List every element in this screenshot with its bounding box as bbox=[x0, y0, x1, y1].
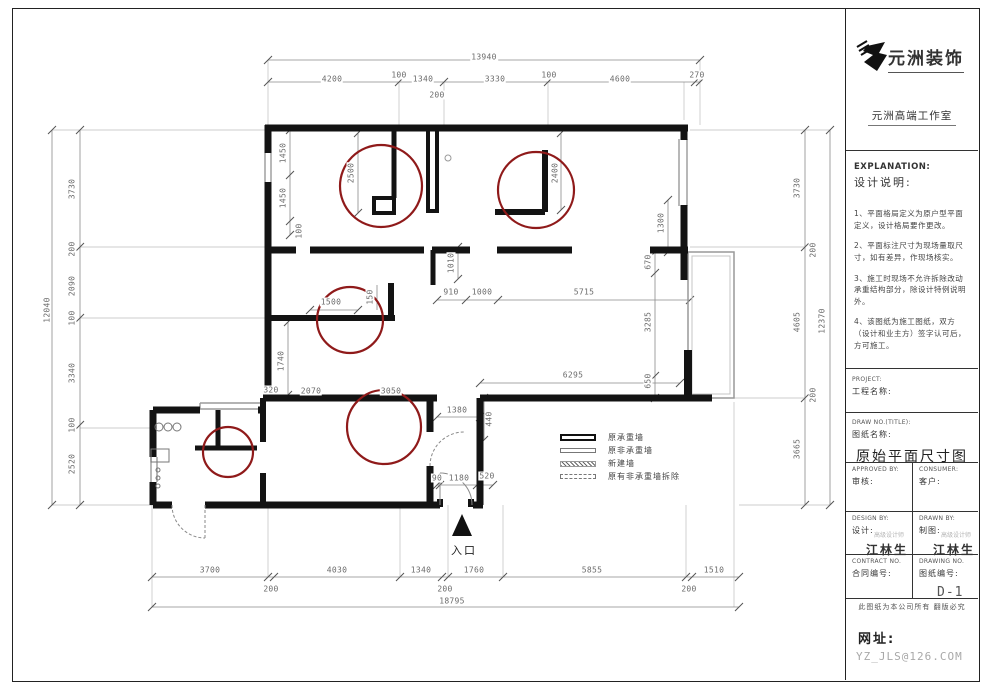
design-note: 4、该图纸为施工图纸，双方（设计和业主方）签字认可后，方可施工。 bbox=[854, 316, 970, 351]
contract-label-en: CONTRACT NO. bbox=[852, 558, 912, 565]
drawing-sheet: 1394042001001340333010046002702001204037… bbox=[0, 0, 990, 690]
dimension-label: 200 bbox=[428, 91, 445, 100]
dimension-label: 320 bbox=[262, 386, 279, 395]
website-label: 网址: bbox=[858, 628, 895, 647]
dimension-label: 150 bbox=[366, 288, 375, 305]
legend-row: 原承重墙 bbox=[560, 431, 680, 444]
divider bbox=[846, 368, 978, 369]
dimension-ticks bbox=[48, 56, 834, 611]
dimension-label: 3700 bbox=[199, 566, 221, 575]
dimension-label: 3285 bbox=[644, 311, 653, 333]
legend-label: 原非承重墙 bbox=[608, 445, 653, 456]
dimension-label: 270 bbox=[688, 71, 705, 80]
dimension-label: 910 bbox=[442, 288, 459, 297]
draftsman-stamp: 高级设计师 bbox=[941, 530, 978, 539]
approved-label-cn: 审核: bbox=[852, 476, 912, 487]
company-name: 元洲装饰 bbox=[888, 44, 964, 73]
dimension-label: 3330 bbox=[484, 75, 506, 84]
legend-label: 新建墙 bbox=[608, 458, 635, 469]
dimension-label: 3730 bbox=[68, 178, 77, 200]
consumer-cell: CONSUMER: 客户: bbox=[912, 462, 978, 511]
legend-swatch-demolish-wall bbox=[560, 474, 596, 479]
dimension-label: 12040 bbox=[43, 296, 52, 324]
dimension-label: 5855 bbox=[581, 566, 603, 575]
project-label-en: PROJECT: bbox=[852, 376, 972, 383]
approved-row: APPROVED BY: 审核: CONSUMER: 客户: bbox=[846, 462, 978, 511]
dimension-label: 1000 bbox=[471, 288, 493, 297]
dimension-label: 2070 bbox=[300, 387, 322, 396]
dimension-label: 200 bbox=[809, 241, 818, 258]
dimension-label: 200 bbox=[680, 585, 697, 594]
company-header: 元洲装饰 bbox=[854, 38, 964, 78]
dimension-label: 4200 bbox=[321, 75, 343, 84]
legend-row: 原非承重墙 bbox=[560, 444, 680, 457]
legend-label: 原承重墙 bbox=[608, 432, 644, 443]
consumer-label-cn: 客户: bbox=[919, 476, 978, 487]
dimension-label: 90 bbox=[431, 474, 443, 483]
dimension-label: 1450 bbox=[279, 142, 288, 164]
drawing-title-label-cn: 图纸名称: bbox=[852, 429, 972, 440]
project-section: PROJECT: 工程名称: bbox=[846, 372, 978, 401]
dimension-label: 1340 bbox=[412, 75, 434, 84]
studio-name: 元洲高端工作室 bbox=[846, 108, 978, 123]
drawn-label-en: DRAWN BY: bbox=[919, 515, 978, 522]
dimension-label: 13940 bbox=[470, 53, 498, 62]
dimension-label: 1760 bbox=[463, 566, 485, 575]
dimension-lines bbox=[52, 60, 830, 607]
legend-row: 原有非承重墙拆除 bbox=[560, 470, 680, 483]
dimension-label: 650 bbox=[644, 372, 653, 389]
floor-plan bbox=[0, 0, 990, 690]
design-note: 2、平面标注尺寸为现场量取尺寸，如有差异，作现场核实。 bbox=[854, 240, 970, 263]
dimension-label: 5715 bbox=[573, 288, 595, 297]
dimension-label: 100 bbox=[390, 71, 407, 80]
dimension-label: 2520 bbox=[68, 453, 77, 475]
dimension-label: 1740 bbox=[277, 350, 286, 372]
dimension-label: 440 bbox=[485, 410, 494, 427]
design-note: 1、平面格局定义为原户型平面定义，设计格局要作更改。 bbox=[854, 208, 970, 231]
dimension-label: 2500 bbox=[347, 162, 356, 184]
wall-legend: 原承重墙 原非承重墙 新建墙 原有非承重墙拆除 bbox=[560, 431, 680, 483]
dimension-label: 1340 bbox=[410, 566, 432, 575]
drawing-no-cell: DRAWING NO. 图纸编号: D-1 bbox=[912, 554, 978, 598]
dimension-label: 2400 bbox=[551, 162, 560, 184]
drawn-cell: DRAWN BY: 制图: 高级设计师 江林生 bbox=[912, 511, 978, 554]
dimension-label: 6295 bbox=[562, 371, 584, 380]
marker-circle bbox=[498, 152, 574, 228]
approved-cell: APPROVED BY: 审核: bbox=[846, 462, 912, 511]
explanation-heading-en: EXPLANATION: bbox=[854, 162, 970, 172]
design-note: 3、施工时现场不允许拆除改动承重结构部分，除设计特例说明外。 bbox=[854, 273, 970, 308]
drawing-no-label-cn: 图纸编号: bbox=[919, 568, 978, 579]
entrance-label: 入口 bbox=[448, 542, 480, 558]
dimension-label: 4030 bbox=[326, 566, 348, 575]
dimension-label: 1300 bbox=[657, 212, 666, 234]
consumer-label-en: CONSUMER: bbox=[919, 466, 978, 473]
dimension-label: 100 bbox=[68, 309, 77, 326]
drawing-no-label-en: DRAWING NO. bbox=[919, 558, 978, 565]
company-logo-icon bbox=[854, 38, 888, 78]
dimension-label: 18795 bbox=[438, 597, 466, 606]
explanation-section: EXPLANATION: 设计说明: 1、平面格局定义为原户型平面定义，设计格局… bbox=[846, 156, 978, 357]
project-label-cn: 工程名称: bbox=[852, 386, 972, 397]
divider bbox=[846, 598, 978, 599]
dimension-label: 200 bbox=[262, 585, 279, 594]
dimension-label: 3340 bbox=[68, 362, 77, 384]
divider bbox=[846, 412, 978, 413]
entrance-arrow-icon bbox=[452, 514, 472, 536]
dimension-label: 4600 bbox=[609, 75, 631, 84]
legend-label: 原有非承重墙拆除 bbox=[608, 471, 680, 482]
dimension-label: 100 bbox=[540, 71, 557, 80]
title-block: 元洲装饰 元洲高端工作室 EXPLANATION: 设计说明: 1、平面格局定义… bbox=[845, 8, 978, 680]
dimension-label: 670 bbox=[644, 253, 653, 270]
website-value: YZ_JLS@126.COM bbox=[856, 650, 963, 663]
legend-swatch-bearing-wall bbox=[560, 434, 596, 441]
dimension-label: 200 bbox=[436, 585, 453, 594]
dimension-label: 200 bbox=[809, 386, 818, 403]
copyright-note: 此图纸为本公司所有 翻版必究 bbox=[846, 602, 978, 612]
legend-swatch-new-wall bbox=[560, 461, 596, 467]
designer-stamp: 高级设计师 bbox=[874, 530, 912, 539]
dimension-label: 100 bbox=[295, 222, 304, 239]
dimension-label: 3665 bbox=[793, 438, 802, 460]
fixtures bbox=[151, 155, 451, 488]
legend-row: 新建墙 bbox=[560, 457, 680, 470]
dimension-label: 1450 bbox=[279, 187, 288, 209]
dimension-label: 4605 bbox=[793, 311, 802, 333]
legend-swatch-nonbearing-wall bbox=[560, 448, 596, 453]
dimension-label: 2090 bbox=[68, 275, 77, 297]
dimension-label: 1180 bbox=[448, 474, 470, 483]
dimension-label: 200 bbox=[68, 240, 77, 257]
dimension-label: 3050 bbox=[380, 387, 402, 396]
dimension-label: 520 bbox=[478, 472, 495, 481]
design-row: DESIGN BY: 设计: 高级设计师 江林生 DRAWN BY: 制图: 高… bbox=[846, 511, 978, 554]
dimension-label: 12370 bbox=[818, 307, 827, 335]
contract-cell: CONTRACT NO. 合同编号: bbox=[846, 554, 912, 598]
contract-label-cn: 合同编号: bbox=[852, 568, 912, 579]
design-label-en: DESIGN BY: bbox=[852, 515, 912, 522]
marker-circle bbox=[203, 427, 253, 477]
contract-row: CONTRACT NO. 合同编号: DRAWING NO. 图纸编号: D-1 bbox=[846, 554, 978, 598]
approved-label-en: APPROVED BY: bbox=[852, 466, 912, 473]
divider bbox=[846, 150, 978, 151]
dimension-label: 1380 bbox=[446, 406, 468, 415]
extension-lines bbox=[52, 60, 830, 607]
dimension-label: 1500 bbox=[320, 298, 342, 307]
dimension-label: 1010 bbox=[447, 252, 456, 274]
dimension-label: 1510 bbox=[703, 566, 725, 575]
drawing-title-label-en: DRAW NO.(TITLE): bbox=[852, 419, 972, 426]
explanation-heading-cn: 设计说明: bbox=[854, 174, 970, 190]
dimension-label: 3730 bbox=[793, 177, 802, 199]
dimension-label: 100 bbox=[68, 416, 77, 433]
design-cell: DESIGN BY: 设计: 高级设计师 江林生 bbox=[846, 511, 912, 554]
